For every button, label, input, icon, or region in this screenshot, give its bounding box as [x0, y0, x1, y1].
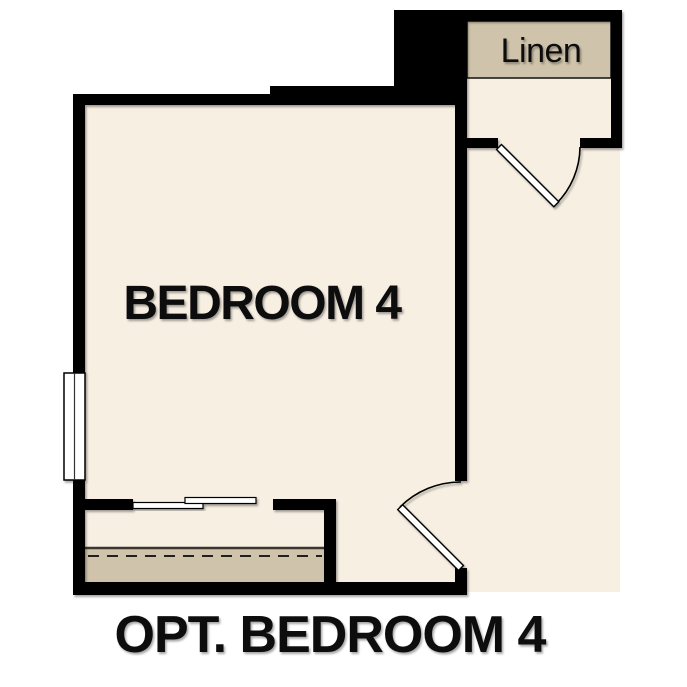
floor-plan-canvas: BEDROOM 4 Linen OPT. BEDROOM 4 [0, 0, 687, 687]
wall-bedroom-right [455, 105, 467, 481]
linen-label: Linen [501, 32, 582, 70]
wall-bottom [73, 582, 467, 595]
window-symbol [64, 373, 85, 480]
wall-closet-right [324, 499, 336, 583]
wall-linen-right [611, 10, 622, 148]
wall-block-top-right [394, 10, 467, 105]
wall-closet-top-left [85, 499, 133, 510]
closet-shelf-group [85, 548, 324, 582]
hallway-floor [455, 105, 620, 592]
wall-top-left [73, 94, 272, 105]
wall-left-lower [73, 480, 85, 595]
bedroom-label: BEDROOM 4 [123, 277, 402, 330]
wall-left-upper [73, 94, 85, 373]
wall-linen-top [467, 10, 622, 21]
wall-linen-door-jamb-right [580, 138, 622, 148]
plan-caption: OPT. BEDROOM 4 [115, 606, 547, 664]
wall-top-stepped [270, 86, 395, 105]
bypass-door-panel-front [185, 498, 256, 504]
closet-shelf-band [85, 548, 324, 582]
floor-plan-drawing: BEDROOM 4 Linen OPT. BEDROOM 4 [0, 0, 687, 687]
